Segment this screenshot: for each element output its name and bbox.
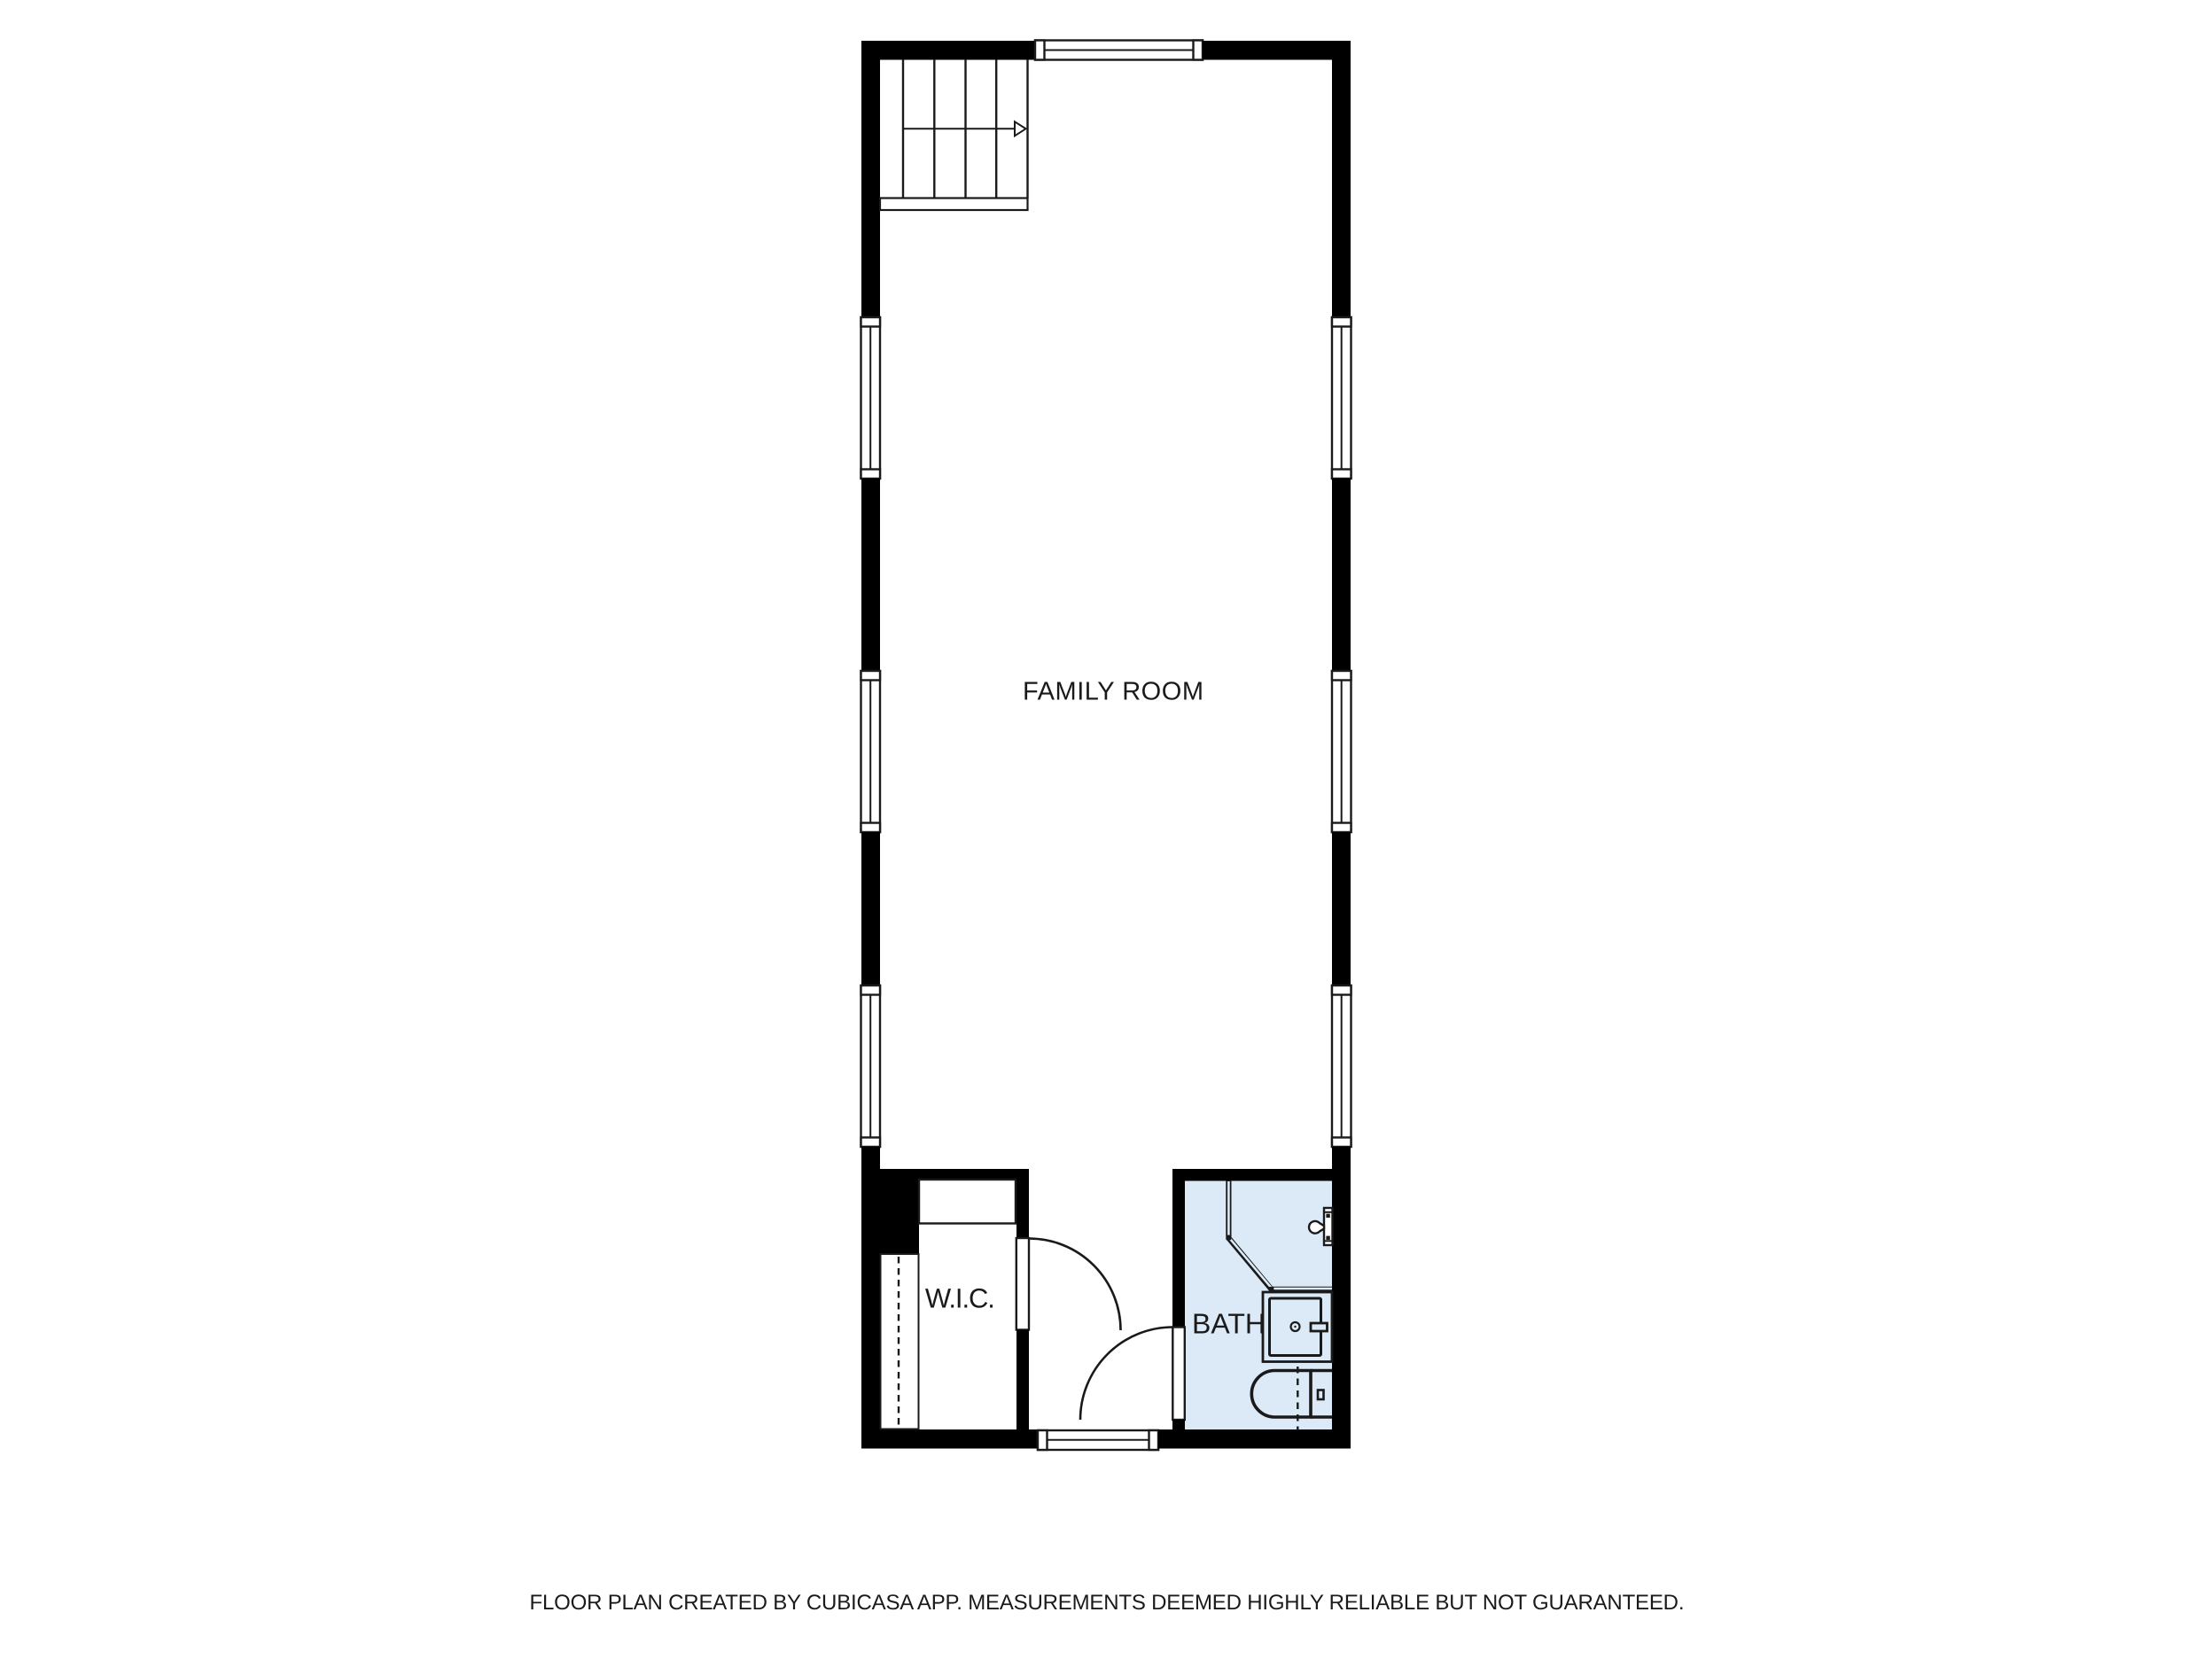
svg-text:W.I.C.: W.I.C. (925, 1283, 995, 1314)
svg-text:BATH: BATH (1192, 1308, 1266, 1340)
svg-text:FLOOR PLAN CREATED BY CUBICASA: FLOOR PLAN CREATED BY CUBICASA APP. MEAS… (530, 1591, 1685, 1615)
svg-text:FAMILY ROOM: FAMILY ROOM (1023, 678, 1203, 706)
